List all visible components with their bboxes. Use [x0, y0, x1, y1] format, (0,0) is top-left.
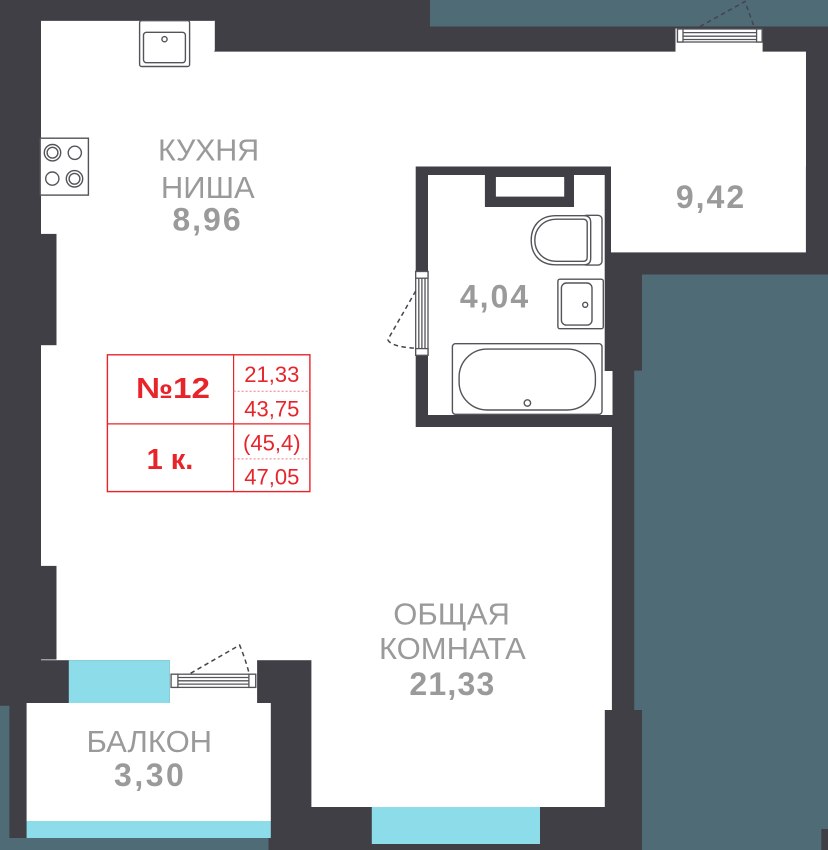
svg-text:№12: №12 — [136, 373, 210, 405]
svg-text:9,42: 9,42 — [676, 179, 746, 215]
svg-text:1 к.: 1 к. — [147, 444, 194, 476]
svg-text:КОМНАТА: КОМНАТА — [379, 631, 526, 666]
svg-text:21,33: 21,33 — [244, 362, 299, 387]
svg-text:3,30: 3,30 — [114, 757, 186, 793]
svg-text:43,75: 43,75 — [244, 396, 299, 421]
svg-text:НИША: НИША — [161, 170, 255, 205]
svg-text:47,05: 47,05 — [244, 465, 299, 490]
svg-text:КУХНЯ: КУХНЯ — [158, 134, 259, 168]
svg-text:21,33: 21,33 — [409, 666, 495, 702]
svg-text:4,04: 4,04 — [460, 279, 530, 315]
svg-text:ОБЩАЯ: ОБЩАЯ — [393, 597, 510, 632]
svg-text:БАЛКОН: БАЛКОН — [87, 724, 213, 759]
svg-text:8,96: 8,96 — [172, 202, 242, 238]
svg-text:(45,4): (45,4) — [243, 431, 300, 456]
